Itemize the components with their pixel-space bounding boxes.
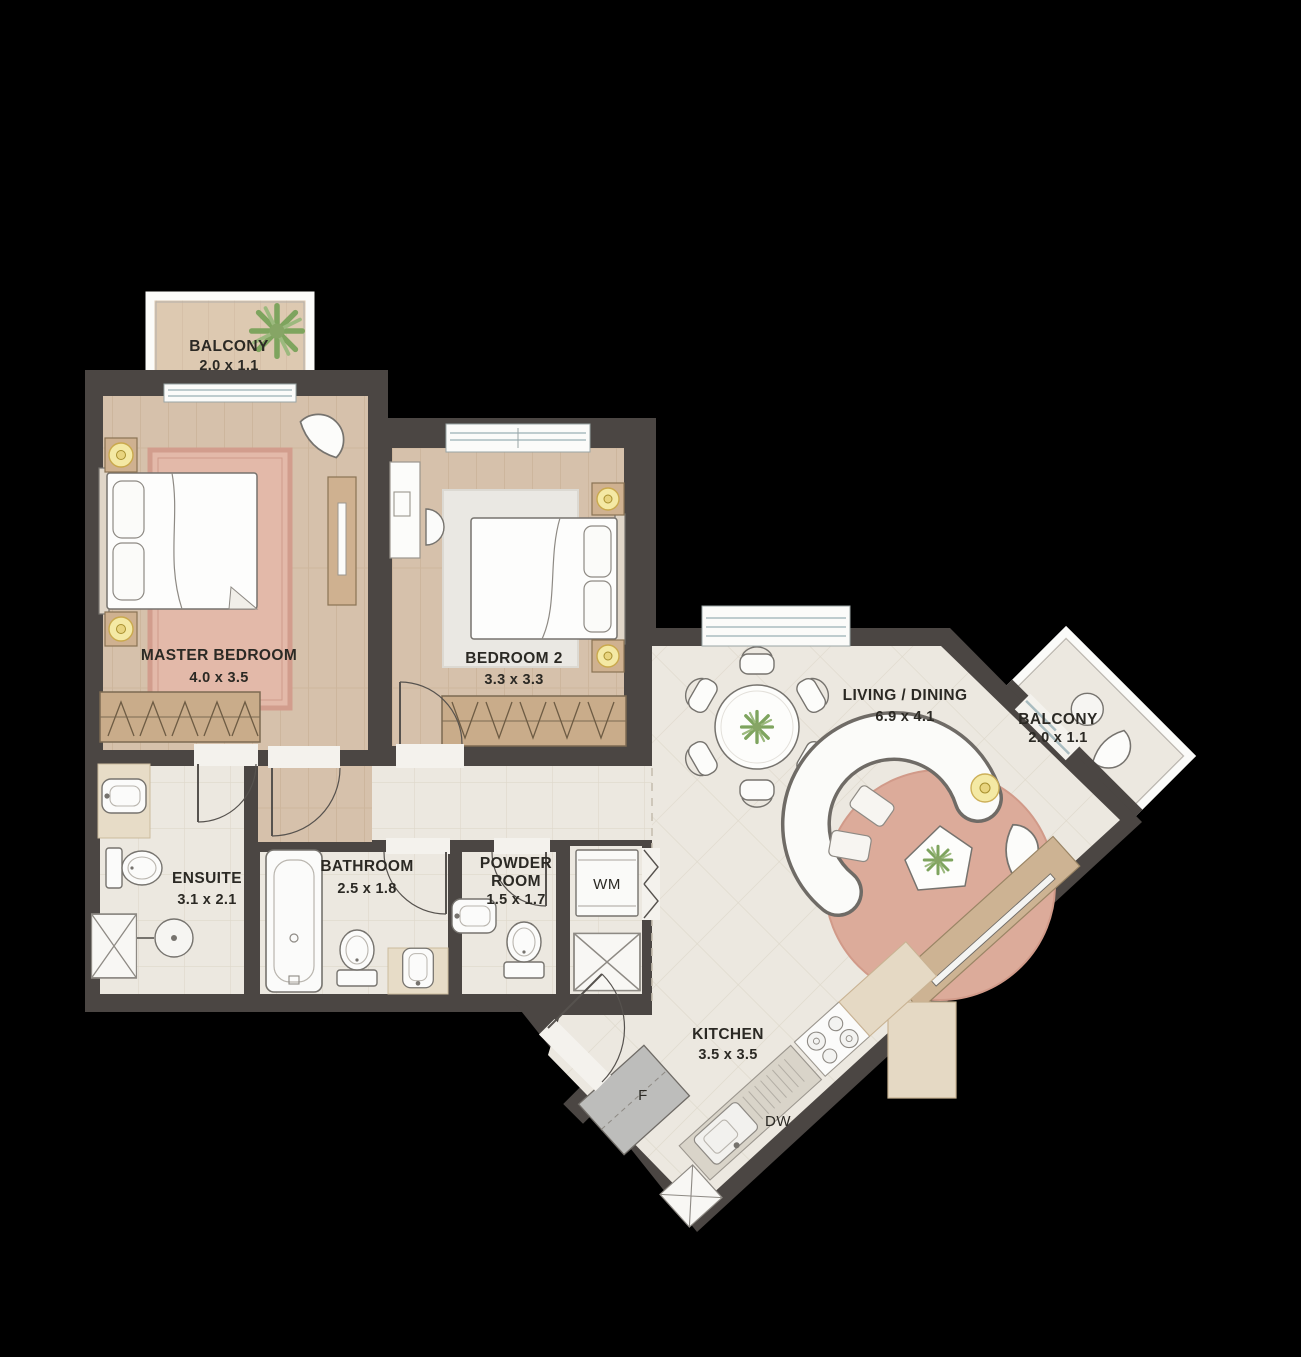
powder-toilet-icon bbox=[504, 922, 544, 978]
plant-icon bbox=[924, 846, 952, 874]
living-window bbox=[702, 606, 850, 646]
label-ensuite: ENSUITE bbox=[172, 870, 242, 887]
label-balcony-top-dims: 2.0 x 1.1 bbox=[199, 358, 258, 374]
label-living-dining-dims: 6.9 x 4.1 bbox=[875, 709, 934, 725]
bedroom2-bed-icon bbox=[471, 514, 625, 644]
floor-corridor bbox=[258, 766, 372, 842]
label-powder-line2: ROOM bbox=[491, 873, 541, 890]
label-dishwasher: DW bbox=[765, 1113, 791, 1130]
floor-plan-svg: BALCONY 2.0 x 1.1 MASTER BEDROOM 4.0 x 3… bbox=[0, 0, 1301, 1357]
label-master-bedroom: MASTER BEDROOM bbox=[141, 647, 297, 664]
floor-plan: BALCONY 2.0 x 1.1 MASTER BEDROOM 4.0 x 3… bbox=[0, 0, 1301, 1357]
bathtub-icon bbox=[266, 850, 322, 992]
label-powder-line1: POWDER bbox=[480, 855, 552, 872]
floor-hall bbox=[372, 766, 652, 840]
master-dresser-icon bbox=[328, 477, 356, 605]
label-kitchen-dims: 3.5 x 3.5 bbox=[698, 1047, 757, 1063]
ensuite-sink-icon bbox=[102, 779, 146, 813]
bathroom-toilet-icon bbox=[337, 930, 377, 986]
label-fridge: F bbox=[638, 1087, 648, 1104]
master-window bbox=[164, 384, 296, 402]
ensuite-toilet-icon bbox=[106, 848, 162, 888]
floor-lamp-icon bbox=[971, 774, 999, 802]
label-kitchen: KITCHEN bbox=[692, 1026, 764, 1043]
bedroom2-nightstand-top bbox=[592, 483, 624, 515]
master-bed-icon bbox=[99, 468, 257, 614]
label-bedroom-2-dims: 3.3 x 3.3 bbox=[484, 672, 543, 688]
label-bedroom-2: BEDROOM 2 bbox=[465, 650, 562, 667]
bedroom2-wardrobe-icon bbox=[442, 696, 626, 746]
master-wardrobe-icon bbox=[100, 692, 260, 742]
bedroom2-nightstand-bottom bbox=[592, 640, 624, 672]
bathroom-sink-icon bbox=[403, 948, 434, 988]
shaft-icon bbox=[574, 933, 640, 990]
label-living-dining: LIVING / DINING bbox=[843, 687, 968, 704]
bedroom2-window bbox=[446, 424, 590, 452]
label-balcony-right: BALCONY bbox=[1018, 711, 1098, 728]
label-ensuite-dims: 3.1 x 2.1 bbox=[177, 892, 236, 908]
label-wm: WM bbox=[593, 876, 621, 893]
label-master-bedroom-dims: 4.0 x 3.5 bbox=[189, 670, 248, 686]
label-balcony-right-dims: 2.0 x 1.1 bbox=[1028, 730, 1087, 746]
master-nightstand-top bbox=[105, 438, 137, 472]
shaft-icon bbox=[92, 914, 137, 978]
kitchen-island bbox=[888, 1002, 956, 1098]
label-powder-dims: 1.5 x 1.7 bbox=[486, 892, 545, 908]
master-nightstand-bottom bbox=[105, 612, 137, 646]
plant-icon bbox=[742, 712, 773, 743]
label-balcony-top: BALCONY bbox=[189, 338, 269, 355]
label-bathroom: BATHROOM bbox=[320, 858, 413, 875]
label-bathroom-dims: 2.5 x 1.8 bbox=[337, 881, 396, 897]
